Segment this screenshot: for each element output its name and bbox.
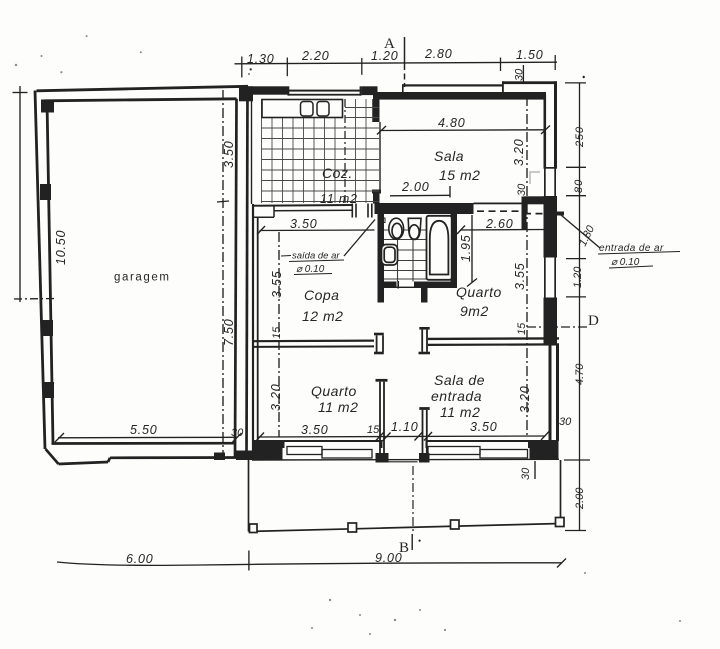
svg-text:entrada: entrada xyxy=(431,388,482,404)
svg-text:7.50: 7.50 xyxy=(222,318,236,346)
svg-text:1.10: 1.10 xyxy=(391,420,419,434)
svg-text:30: 30 xyxy=(514,68,526,81)
svg-text:11 m2: 11 m2 xyxy=(320,192,358,206)
svg-text:Sala: Sala xyxy=(434,148,464,164)
svg-text:3.50: 3.50 xyxy=(222,140,236,168)
svg-text:2.20: 2.20 xyxy=(301,49,330,63)
svg-text:Copa: Copa xyxy=(304,287,339,303)
svg-text:2.00: 2.00 xyxy=(401,180,430,194)
svg-text:30: 30 xyxy=(516,183,528,196)
svg-text:5.50: 5.50 xyxy=(130,423,158,437)
svg-text:15: 15 xyxy=(367,424,380,436)
svg-text:15: 15 xyxy=(516,322,528,335)
svg-text:80: 80 xyxy=(573,179,585,193)
svg-text:D: D xyxy=(588,313,599,329)
svg-text:3.20: 3.20 xyxy=(518,385,532,413)
svg-text:30: 30 xyxy=(231,427,244,439)
svg-text:Quarto: Quarto xyxy=(311,383,357,399)
svg-text:3.20: 3.20 xyxy=(269,383,283,411)
svg-text:11 m2: 11 m2 xyxy=(440,404,480,420)
svg-text:Sala de: Sala de xyxy=(434,372,485,388)
svg-text:Coz.: Coz. xyxy=(322,165,353,181)
svg-text:11 m2: 11 m2 xyxy=(318,399,358,415)
svg-text:1.20: 1.20 xyxy=(371,49,399,63)
svg-text:250: 250 xyxy=(574,126,586,148)
svg-text:9.00: 9.00 xyxy=(375,551,403,565)
svg-text:3.55: 3.55 xyxy=(270,270,284,298)
svg-text:1.30: 1.30 xyxy=(247,52,275,66)
svg-text:1.20: 1.20 xyxy=(572,266,584,288)
svg-text:15 m2: 15 m2 xyxy=(439,167,480,183)
svg-text:garagem: garagem xyxy=(114,272,171,284)
svg-text:30: 30 xyxy=(520,467,532,480)
svg-text:2.60: 2.60 xyxy=(485,217,514,231)
svg-text:10.50: 10.50 xyxy=(54,230,68,265)
svg-text:6.00: 6.00 xyxy=(126,552,154,566)
svg-text:2.00: 2.00 xyxy=(574,487,586,510)
svg-text:3.50: 3.50 xyxy=(290,217,318,231)
svg-text:12 m2: 12 m2 xyxy=(302,308,343,324)
svg-text:2.80: 2.80 xyxy=(424,47,453,61)
svg-text:9m2: 9m2 xyxy=(460,303,489,319)
svg-text:4.70: 4.70 xyxy=(574,363,586,385)
svg-text:3.20: 3.20 xyxy=(512,138,526,166)
svg-text:Quarto: Quarto xyxy=(456,284,502,300)
svg-text:30: 30 xyxy=(559,416,572,428)
svg-text:3.50: 3.50 xyxy=(470,420,498,434)
svg-text:1.95: 1.95 xyxy=(459,234,473,262)
svg-text:4.80: 4.80 xyxy=(438,116,466,130)
svg-text:3.55: 3.55 xyxy=(513,262,527,290)
svg-text:15: 15 xyxy=(271,326,283,339)
svg-text:3.50: 3.50 xyxy=(301,423,329,437)
svg-text:1.50: 1.50 xyxy=(516,48,544,62)
